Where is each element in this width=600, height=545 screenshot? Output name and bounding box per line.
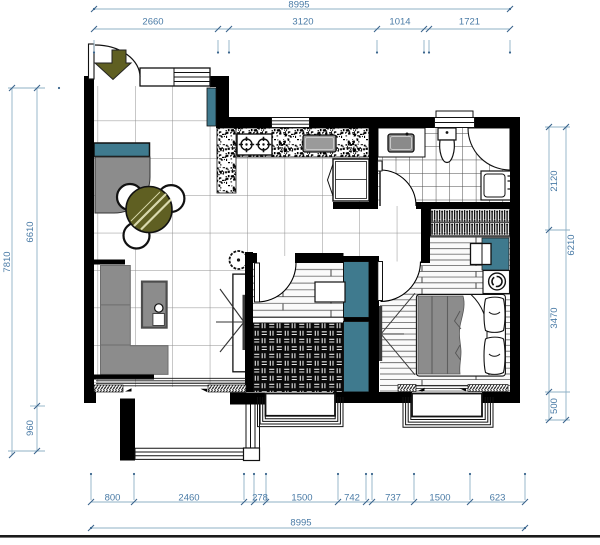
svg-text:2460: 2460 bbox=[178, 493, 199, 504]
svg-text:737: 737 bbox=[385, 493, 401, 504]
svg-text:2120: 2120 bbox=[549, 170, 560, 191]
svg-text:623: 623 bbox=[490, 493, 506, 504]
svg-text:1721: 1721 bbox=[459, 17, 480, 28]
svg-text:800: 800 bbox=[105, 493, 121, 504]
svg-text:3470: 3470 bbox=[549, 307, 560, 328]
svg-text:8995: 8995 bbox=[288, 0, 309, 11]
svg-text:7810: 7810 bbox=[2, 251, 13, 272]
svg-text:278: 278 bbox=[252, 493, 268, 504]
svg-text:8995: 8995 bbox=[290, 518, 311, 529]
svg-text:1014: 1014 bbox=[389, 17, 410, 28]
svg-text:960: 960 bbox=[25, 420, 36, 436]
svg-text:1500: 1500 bbox=[429, 493, 450, 504]
svg-text:6210: 6210 bbox=[566, 234, 577, 255]
svg-text:6610: 6610 bbox=[25, 221, 36, 242]
svg-text:1500: 1500 bbox=[291, 493, 312, 504]
svg-text:2660: 2660 bbox=[142, 17, 163, 28]
svg-text:3120: 3120 bbox=[292, 17, 313, 28]
svg-text:742: 742 bbox=[344, 493, 360, 504]
svg-text:500: 500 bbox=[549, 398, 560, 414]
